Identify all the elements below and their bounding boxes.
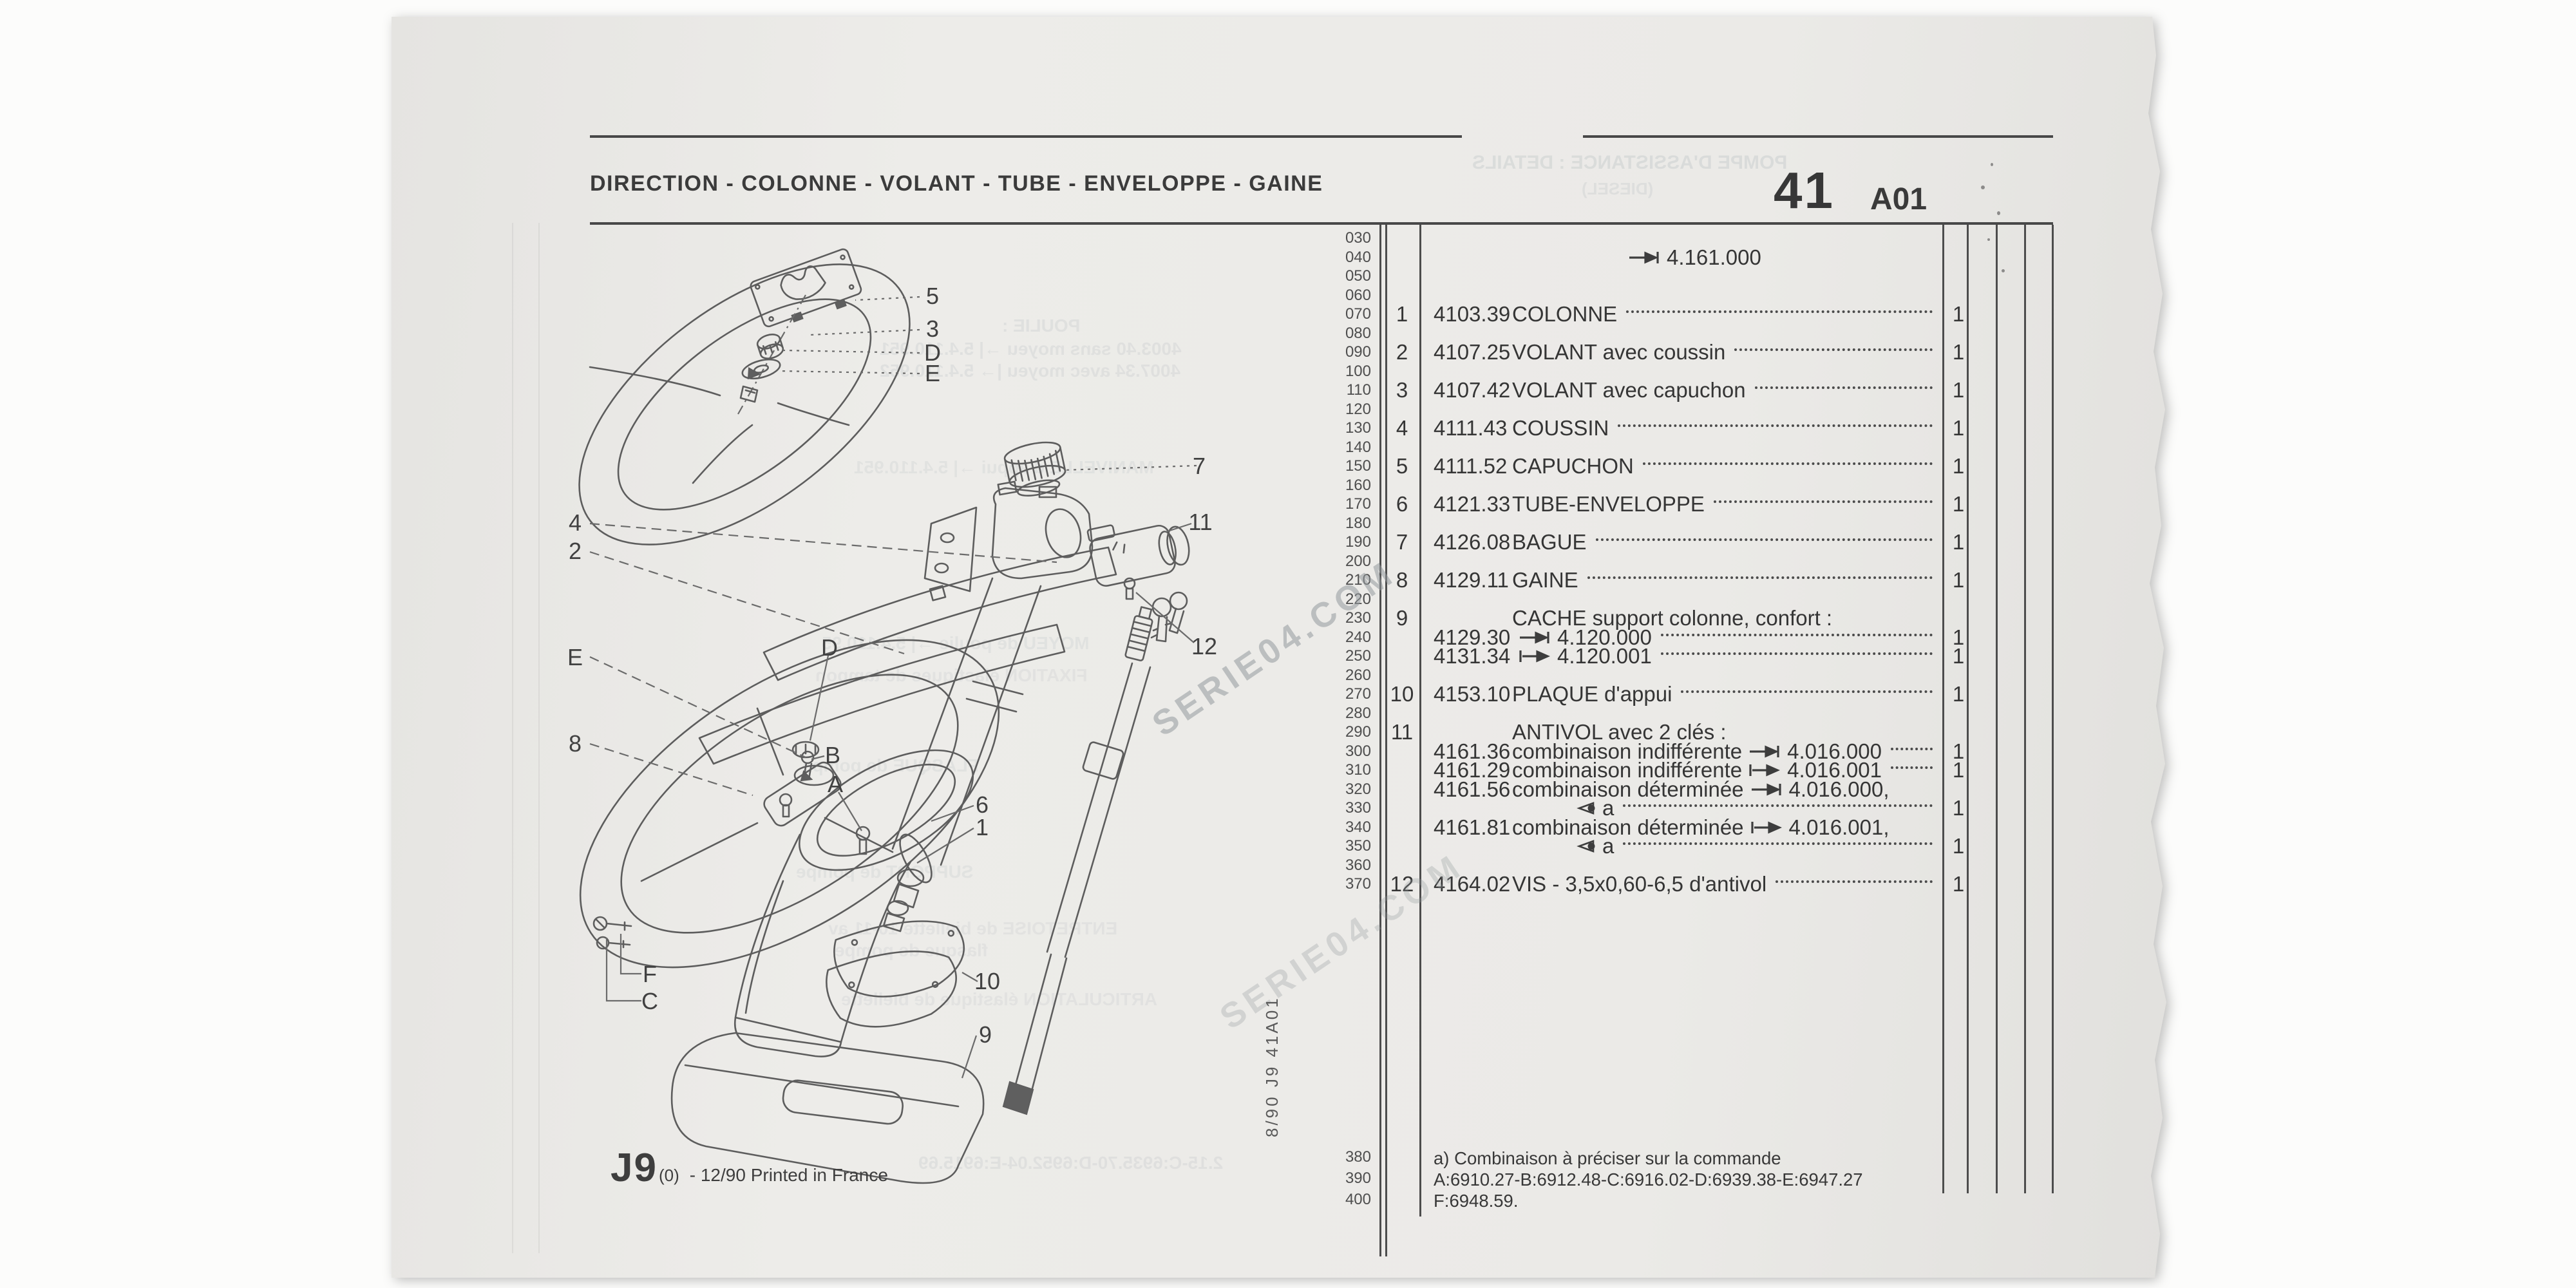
upto-serial-icon	[1748, 744, 1781, 759]
callout-label: A	[815, 771, 856, 798]
catalog-page: DIRECTION - COLONNE - VOLANT - TUBE - EN…	[392, 17, 2170, 1278]
footnote-text: A:6910.27-B:6912.48-C:6916.02-D:6939.38-…	[1434, 1170, 1863, 1190]
part-number: 4131.34	[1434, 644, 1506, 668]
mounting-bracket	[925, 507, 976, 591]
description-text: VIS - 3,5x0,60-6,5 d'antivol	[1512, 872, 1766, 896]
callout-label: D	[809, 634, 850, 661]
table-row: 09024107.25VOLANT avec coussin1	[1325, 343, 1971, 362]
callout-label: E	[912, 360, 953, 387]
callout-label: C	[629, 988, 670, 1015]
quantity: 1	[1944, 378, 1973, 402]
part-number: 4111.43	[1434, 416, 1506, 440]
callout-label: E	[554, 644, 596, 671]
part-number: 4153.10	[1434, 682, 1506, 706]
leader-dots	[1776, 880, 1933, 883]
cushion-pads	[699, 547, 1116, 764]
table-rule	[2052, 225, 2054, 1193]
page-code: A01	[1870, 182, 1927, 217]
description-text: a	[1602, 834, 1614, 858]
column-tube	[884, 578, 1041, 931]
callout-label: F	[629, 961, 670, 988]
bleedthrough-text: (DIESEL)	[1582, 179, 1653, 199]
serial-number: 4.120.001	[1557, 644, 1652, 668]
description-cell: 4.161.000	[1434, 245, 1937, 270]
leader-dots	[1891, 766, 1933, 769]
from-serial-icon	[1750, 820, 1783, 835]
table-row: 11034107.42VOLANT avec capuchon1	[1325, 381, 1971, 400]
description-cell: 4129.11GAINE	[1434, 568, 1937, 592]
description-text: COLONNE	[1512, 302, 1617, 327]
steering-shaft	[1003, 663, 1150, 1114]
quantity: 1	[1944, 340, 1973, 365]
description-text: COUSSIN	[1512, 416, 1609, 440]
quantity: 1	[1944, 872, 1973, 896]
table-rule	[2024, 225, 2026, 1193]
part-number: 4107.25	[1434, 340, 1506, 365]
table-row: 15054111.52CAPUCHON1	[1325, 457, 1971, 476]
description-cell: 4164.02VIS - 3,5x0,60-6,5 d'antivol	[1434, 872, 1937, 896]
quantity: 1	[1944, 454, 1973, 478]
hub-washer-upper	[741, 356, 782, 383]
upto-serial-icon	[1750, 782, 1783, 797]
leader-dots	[1643, 462, 1933, 465]
part-number: 4121.33	[1434, 492, 1506, 516]
leader-dots	[1891, 748, 1933, 750]
footer: J9(0)- 12/90 Printed in France	[611, 1145, 888, 1191]
header-rule-bottom	[590, 222, 2053, 225]
quantity: 1	[1944, 302, 1973, 327]
serial-number: 4.161.000	[1667, 245, 1761, 270]
description-text: VOLANT avec capuchon	[1512, 378, 1746, 402]
note-ref-icon	[1577, 838, 1596, 854]
assembly-axis	[738, 295, 806, 414]
footnote-text: a) Combinaison à préciser sur la command…	[1434, 1148, 1781, 1169]
keys	[1151, 592, 1187, 641]
callout-label: 5	[912, 283, 953, 310]
callout-label: B	[812, 742, 853, 769]
scanned-catalog-page: { "header": { "title": "DIRECTION - COLO…	[0, 0, 2576, 1288]
callout-label: 8	[554, 730, 596, 757]
table-row: 19074126.08BAGUE1	[1325, 533, 1971, 552]
table-rule	[1996, 225, 1998, 1193]
from-serial-icon	[1748, 762, 1781, 778]
note-ref-icon	[1577, 800, 1596, 816]
quantity: 1	[1944, 796, 1973, 820]
description-text: PLAQUE d'appui	[1512, 682, 1672, 706]
header-rule-top-left	[590, 135, 1462, 138]
description-cell: 4107.25VOLANT avec coussin	[1434, 340, 1937, 365]
description-cell: 4131.344.120.001	[1434, 644, 1937, 668]
table-row: 2504131.344.120.0011	[1325, 647, 1971, 666]
callout-label: 12	[1184, 633, 1225, 660]
callout-label: 10	[967, 968, 1008, 995]
description-cell: 4126.08BAGUE	[1434, 530, 1937, 554]
leader-dots	[1755, 386, 1933, 389]
paper-sheet: DIRECTION - COLONNE - VOLANT - TUBE - EN…	[392, 17, 2170, 1278]
quantity: 1	[1944, 568, 1973, 592]
callout-label: 11	[1180, 509, 1221, 536]
table-row: 07014103.39COLONNE1	[1325, 305, 1971, 324]
leader-dots	[1734, 348, 1933, 351]
scan-speck	[1987, 238, 1990, 241]
description-cell: 4121.33TUBE-ENVELOPPE	[1434, 492, 1937, 516]
description-cell: 4103.39COLONNE	[1434, 302, 1937, 327]
leader-dots	[1626, 310, 1933, 313]
quantity: 1	[1944, 644, 1973, 668]
description-text: GAINE	[1512, 568, 1578, 592]
footnote-text: F:6948.59.	[1434, 1191, 1518, 1211]
footer-model: J9	[611, 1145, 658, 1191]
table-row: 270104153.10PLAQUE d'appui1	[1325, 685, 1971, 704]
description-text: CAPUCHON	[1512, 454, 1634, 478]
scan-speck	[1997, 211, 2000, 215]
screw-a	[857, 827, 869, 854]
table-row: 17064121.33TUBE-ENVELOPPE1	[1325, 495, 1971, 514]
leader-dots	[1596, 538, 1933, 541]
footer-printed: - 12/90 Printed in France	[690, 1165, 888, 1186]
scan-speck	[2002, 269, 2005, 272]
description-cell: 4107.42VOLANT avec capuchon	[1434, 378, 1937, 402]
quantity: 1	[1944, 530, 1973, 554]
callout-label: 7	[1179, 453, 1220, 480]
part-number: 4111.52	[1434, 454, 1506, 478]
bleedthrough-text: POMPE D'ASSISTANCE : DETAILS	[1472, 152, 1787, 174]
callout-label: 9	[965, 1021, 1006, 1048]
quantity: 1	[1944, 834, 1973, 858]
leader-dots	[1623, 804, 1933, 807]
table-row: 350a1	[1325, 837, 1971, 856]
side-code: 8/90 J9 41A01	[1262, 957, 1288, 1137]
scan-speck	[1991, 163, 1993, 166]
quantity: 1	[1944, 758, 1973, 782]
part-number: 4103.39	[1434, 302, 1506, 327]
table-row: 0404.161.000	[1325, 248, 1971, 267]
footer-model-suffix: (0)	[659, 1166, 679, 1186]
description-text: VOLANT avec coussin	[1512, 340, 1725, 365]
upto-serial-icon	[1519, 630, 1551, 645]
quantity: 1	[1944, 682, 1973, 706]
callout-label: 2	[554, 538, 596, 565]
table-row: 050	[1325, 267, 1971, 286]
horn-pad	[750, 248, 865, 334]
description-text: BAGUE	[1512, 530, 1587, 554]
quantity: 1	[1944, 416, 1973, 440]
column-head-housing	[992, 482, 1092, 578]
part-number: 4129.11	[1434, 568, 1506, 592]
leader-dots	[1661, 652, 1933, 655]
description-cell: 4111.52CAPUCHON	[1434, 454, 1937, 478]
leader-dots	[1661, 634, 1933, 636]
leader-dots	[1618, 424, 1933, 427]
upto-serial-icon	[1628, 250, 1660, 265]
description-cell: 4111.43COUSSIN	[1434, 416, 1937, 440]
leader-dots	[1623, 842, 1933, 845]
column-shroud-upper	[735, 726, 991, 1057]
quantity: 1	[1944, 492, 1973, 516]
part-number: 4107.42	[1434, 378, 1506, 402]
callout-label: 3	[912, 316, 953, 343]
description-text: TUBE-ENVELOPPE	[1512, 492, 1705, 516]
part-number: 4126.08	[1434, 530, 1506, 554]
description-cell: 4153.10PLAQUE d'appui	[1434, 682, 1937, 706]
leader-dots	[1681, 690, 1933, 693]
scan-speck	[1981, 185, 1985, 189]
description-cell: a	[1434, 834, 1937, 858]
leader-dots	[1714, 500, 1933, 503]
page-title: DIRECTION - COLONNE - VOLANT - TUBE - EN…	[590, 171, 1323, 196]
header-rule-top-right	[1583, 135, 2053, 138]
table-row: 21084129.11GAINE1	[1325, 571, 1971, 590]
table-row: 13044111.43COUSSIN1	[1325, 419, 1971, 438]
threaded-shaft-end	[1125, 606, 1155, 661]
leader-lines	[590, 297, 1197, 1078]
callout-label: 1	[961, 814, 1003, 841]
from-serial-icon	[1519, 649, 1551, 664]
callout-label: 4	[554, 509, 596, 536]
leader-dots	[1587, 576, 1933, 579]
